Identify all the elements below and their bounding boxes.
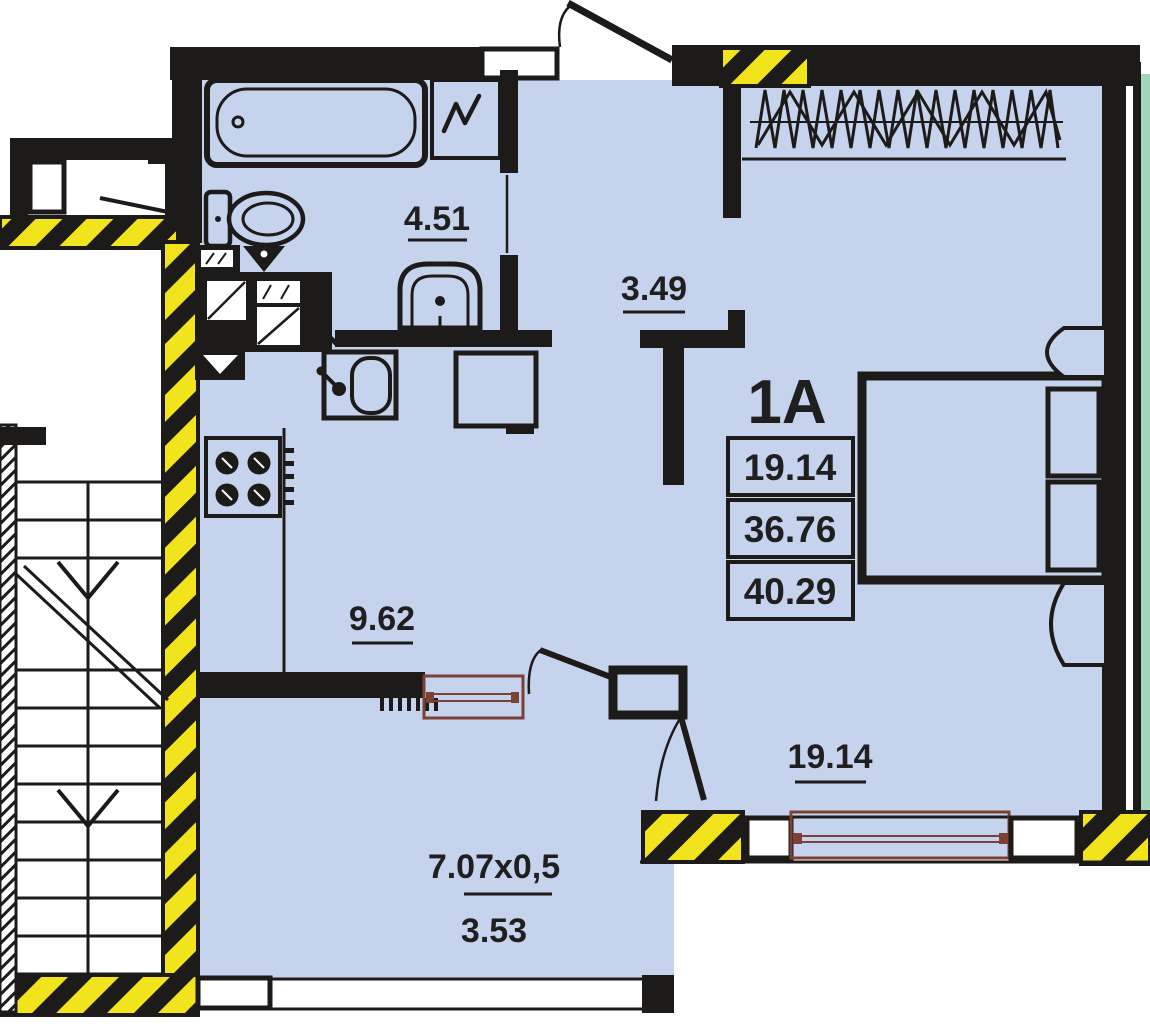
bedside-table-top bbox=[1047, 328, 1106, 377]
hallway-area-value: 3.49 bbox=[621, 270, 687, 308]
adjacent-unit-floor bbox=[1141, 74, 1150, 812]
elevator-cab-symbol bbox=[30, 162, 64, 212]
t-wall-stem bbox=[663, 348, 684, 485]
vent-box-small bbox=[201, 250, 233, 267]
stove bbox=[206, 438, 280, 516]
entrance-pier bbox=[482, 49, 557, 78]
top-wall-left bbox=[170, 47, 485, 80]
washbasin-drain bbox=[435, 296, 445, 306]
kitchen-area-value: 9.62 bbox=[349, 600, 415, 638]
window-pier-2 bbox=[1011, 818, 1077, 858]
vent-triangle-dot bbox=[261, 251, 268, 258]
elevator-top-wall bbox=[10, 138, 182, 160]
balcony-door-pier bbox=[613, 670, 683, 715]
stair-hatched-wall bbox=[0, 425, 16, 1012]
kitchen-bottom-wall bbox=[198, 672, 425, 698]
adjacent-unit-wall bbox=[1133, 62, 1141, 812]
t-wall-return bbox=[728, 310, 745, 330]
pillow-1 bbox=[1048, 389, 1099, 476]
bathroom-bottom-wall bbox=[335, 330, 552, 347]
label-bathroom-area: 4.51 bbox=[404, 200, 470, 240]
balcony-area-value: 3.53 bbox=[461, 912, 527, 950]
area-table: 19.14 36.76 40.29 bbox=[728, 438, 853, 619]
label-living-room-area: 19.14 bbox=[787, 738, 872, 782]
window-pier-1 bbox=[747, 818, 791, 858]
t-wall-horizontal bbox=[640, 330, 745, 348]
vent-duct-2 bbox=[257, 281, 300, 303]
floor-plan-drawing: 4.51 3.49 1A 19.14 36.76 40.29 9.62 19.1… bbox=[0, 0, 1150, 1030]
wardrobe-side-wall bbox=[723, 86, 741, 218]
hazard-pier-left bbox=[643, 812, 743, 862]
hazard-wall-top-left bbox=[0, 217, 178, 248]
floor-plan-page: 4.51 3.49 1A 19.14 36.76 40.29 9.62 19.1… bbox=[0, 0, 1150, 1030]
area-table-value-2: 36.76 bbox=[744, 509, 837, 550]
kitchen-sink bbox=[317, 352, 397, 418]
area-table-value-3: 40.29 bbox=[744, 571, 837, 612]
hazard-wall-vertical bbox=[163, 242, 198, 978]
bathroom-area-value: 4.51 bbox=[404, 200, 470, 238]
washing-machine bbox=[432, 80, 500, 158]
stair-wall-cap bbox=[0, 427, 46, 445]
refrigerator bbox=[456, 353, 536, 434]
label-hallway-area: 3.49 bbox=[621, 270, 687, 312]
pillow-2 bbox=[1048, 482, 1099, 570]
label-kitchen-area: 9.62 bbox=[349, 600, 415, 643]
unit-label: 1A bbox=[747, 368, 826, 437]
balcony-dimensions-value: 7.07x0,5 bbox=[428, 848, 560, 886]
bedside-table-bottom bbox=[1051, 583, 1106, 665]
hazard-wall-bottom-left bbox=[0, 975, 198, 1015]
toilet bbox=[206, 192, 303, 246]
area-table-value-1: 19.14 bbox=[744, 447, 837, 488]
parapet-pier-left bbox=[198, 978, 270, 1008]
elevator-left-jamb bbox=[10, 160, 28, 218]
bathtub bbox=[207, 80, 425, 165]
hazard-wall-top-segment bbox=[721, 48, 809, 86]
balcony-parapet bbox=[198, 975, 674, 1013]
bathroom-wall-upper bbox=[500, 70, 518, 173]
living-room-area-value: 19.14 bbox=[787, 738, 872, 776]
elevator-right-jamb bbox=[165, 158, 183, 216]
faucet-spout bbox=[317, 367, 326, 376]
hazard-pier-right bbox=[1081, 812, 1150, 864]
parapet-pier-right bbox=[642, 975, 674, 1013]
washbasin bbox=[400, 264, 480, 328]
